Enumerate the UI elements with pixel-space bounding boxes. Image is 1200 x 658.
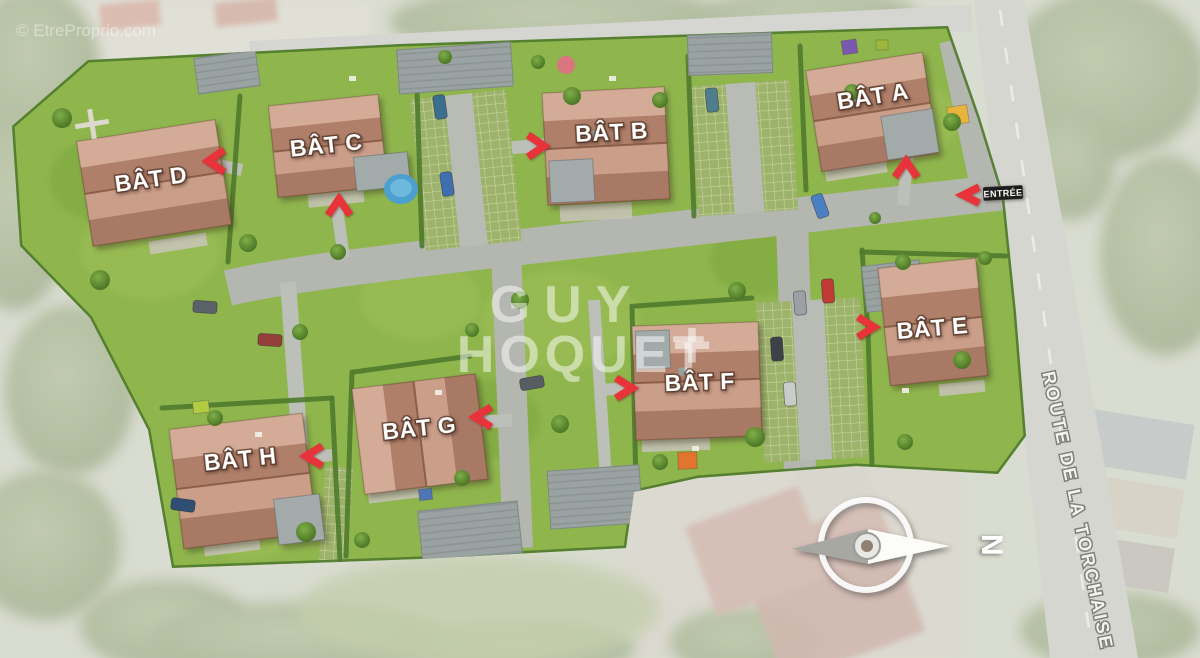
entree-badge-label: ENTRÉE [983,187,1022,199]
compass-north-label: N [975,534,1008,556]
building-b [542,87,670,205]
garden-item [192,400,209,414]
carport-roof [687,33,772,76]
building-label-b: BÂT B [575,116,649,147]
parking-lot [756,297,868,462]
carport-roof [397,42,514,94]
site-plan-image: ENTRÉE GUY HOQUET + BÂT A BÂT B BÂT C BÂ… [0,0,1200,658]
source-watermark: © EtreProprio.com [16,21,156,40]
entree-badge: ENTRÉE [983,185,1024,201]
garden-item [678,452,698,470]
garden-item [841,39,858,55]
building-label-f: BÂT F [664,367,735,396]
building-a [806,52,939,171]
parasol [557,56,575,74]
carport-roof [418,501,523,563]
pool-water [390,179,412,197]
garden-item [418,488,432,501]
garden-item [876,40,888,50]
carport-roof [547,465,643,529]
parking-lot [410,89,521,250]
site-plan-svg: ENTRÉE GUY HOQUET + BÂT A BÂT B BÂT C BÂ… [0,0,1200,658]
